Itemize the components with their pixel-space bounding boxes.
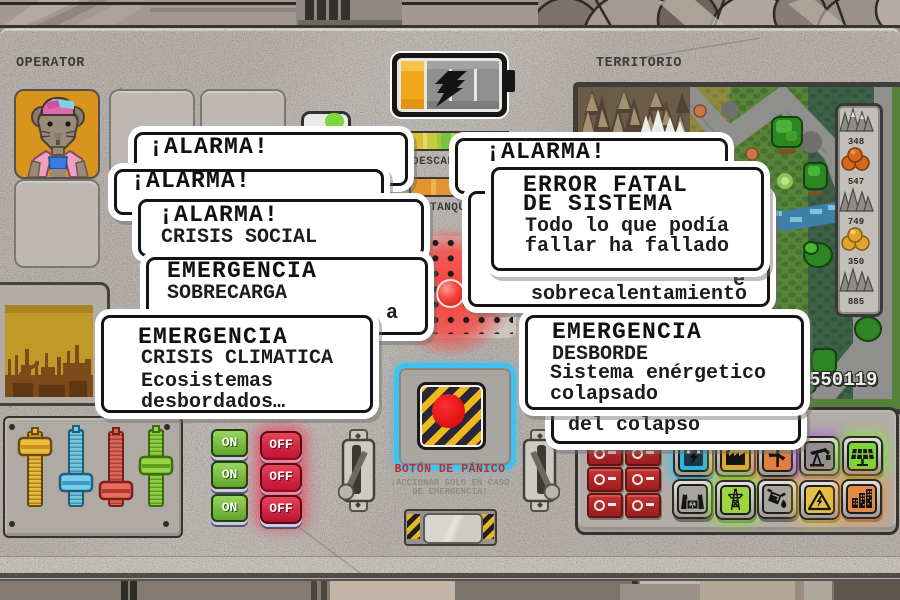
svg-text:547: 547 — [848, 177, 864, 187]
svg-text:749: 749 — [848, 217, 864, 227]
svg-text:348: 348 — [848, 137, 864, 147]
svg-text:885: 885 — [848, 297, 864, 307]
svg-text:350: 350 — [848, 257, 864, 267]
